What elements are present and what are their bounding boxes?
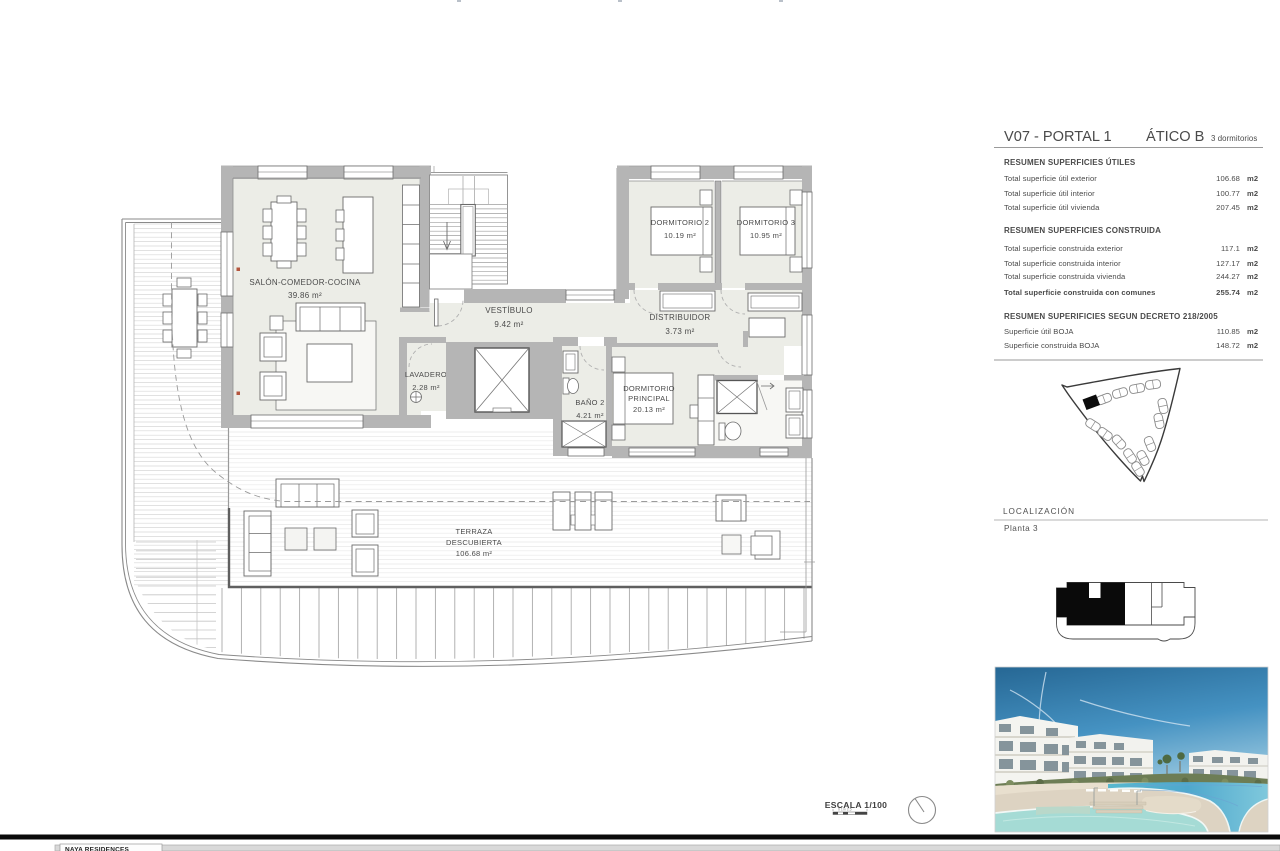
svg-text:m2: m2 <box>1247 327 1258 336</box>
svg-text:Total superficie construida in: Total superficie construida interior <box>1004 259 1121 268</box>
svg-text:m2: m2 <box>1247 244 1258 253</box>
svg-text:106.68 m²: 106.68 m² <box>456 549 493 558</box>
svg-text:m2: m2 <box>1247 341 1258 350</box>
svg-text:DORMITORIO: DORMITORIO <box>623 384 675 393</box>
svg-text:0 1m 2.5: 0 1m 2.5 <box>838 808 852 812</box>
svg-text:ESCALA 1/100: ESCALA 1/100 <box>825 800 888 810</box>
svg-text:Total superficie útil vivienda: Total superficie útil vivienda <box>1004 203 1100 212</box>
svg-text:148.72: 148.72 <box>1216 341 1240 350</box>
svg-text:NAYA RESIDENCES: NAYA RESIDENCES <box>65 847 130 851</box>
svg-text:ÁTICO B: ÁTICO B <box>1146 128 1204 145</box>
svg-text:Total superficie construida vi: Total superficie construida vivienda <box>1004 272 1126 281</box>
svg-text:m2: m2 <box>1247 272 1258 281</box>
svg-text:m2: m2 <box>1247 174 1258 183</box>
svg-text:DORMITORIO 3: DORMITORIO 3 <box>737 218 795 227</box>
svg-text:10.95 m²: 10.95 m² <box>750 231 782 240</box>
svg-text:TERRAZA: TERRAZA <box>455 527 492 536</box>
svg-text:DESCUBIERTA: DESCUBIERTA <box>446 538 502 547</box>
svg-text:SALÓN-COMEDOR-COCINA: SALÓN-COMEDOR-COCINA <box>249 278 361 287</box>
svg-text:RESUMEN SUPERIFICIES SEGUN DEC: RESUMEN SUPERIFICIES SEGUN DECRETO 218/2… <box>1004 312 1218 321</box>
svg-text:Total superficie útil exterior: Total superficie útil exterior <box>1004 174 1097 183</box>
svg-text:244.27: 244.27 <box>1216 272 1240 281</box>
svg-text:DORMITORIO 2: DORMITORIO 2 <box>651 218 709 227</box>
svg-text:Superficie construida BOJA: Superficie construida BOJA <box>1004 341 1100 350</box>
svg-text:m2: m2 <box>1247 288 1258 297</box>
svg-text:3.73 m²: 3.73 m² <box>665 327 694 336</box>
svg-text:106.68: 106.68 <box>1216 174 1240 183</box>
svg-text:39.86 m²: 39.86 m² <box>288 291 322 300</box>
svg-text:BAÑO 2: BAÑO 2 <box>575 398 604 407</box>
svg-text:DISTRIBUIDOR: DISTRIBUIDOR <box>650 313 711 322</box>
svg-text:LOCALIZACIÓN: LOCALIZACIÓN <box>1003 506 1075 516</box>
svg-text:LAVADERO: LAVADERO <box>405 370 447 379</box>
svg-text:3 dormitorios: 3 dormitorios <box>1211 134 1257 143</box>
svg-text:9.42 m²: 9.42 m² <box>494 320 523 329</box>
svg-text:10.19 m²: 10.19 m² <box>664 231 696 240</box>
svg-text:100.77: 100.77 <box>1216 189 1240 198</box>
svg-text:117.1: 117.1 <box>1221 244 1240 253</box>
svg-text:Superficie útil BOJA: Superficie útil BOJA <box>1004 327 1074 336</box>
svg-text:PRINCIPAL: PRINCIPAL <box>628 394 670 403</box>
svg-text:20.13 m²: 20.13 m² <box>633 405 665 414</box>
svg-text:Total superficie construida co: Total superficie construida con comunes <box>1004 288 1155 297</box>
svg-text:127.17: 127.17 <box>1216 259 1240 268</box>
svg-text:V07 - PORTAL 1: V07 - PORTAL 1 <box>1004 129 1112 145</box>
svg-text:RESUMEN SUPERFICIES CONSTRUIDA: RESUMEN SUPERFICIES CONSTRUIDA <box>1004 226 1161 235</box>
svg-text:Total superficie útil interior: Total superficie útil interior <box>1004 189 1095 198</box>
svg-text:110.85: 110.85 <box>1217 327 1240 336</box>
svg-text:4.21 m²: 4.21 m² <box>576 411 604 420</box>
svg-text:207.45: 207.45 <box>1216 203 1240 212</box>
svg-text:RESUMEN SUPERFICIES ÚTILES: RESUMEN SUPERFICIES ÚTILES <box>1004 158 1136 167</box>
svg-text:Planta 3: Planta 3 <box>1004 524 1038 533</box>
svg-text:m2: m2 <box>1247 203 1258 212</box>
svg-text:m2: m2 <box>1247 259 1258 268</box>
svg-text:VESTÍBULO: VESTÍBULO <box>485 306 533 315</box>
svg-text:m2: m2 <box>1247 189 1258 198</box>
svg-text:255.74: 255.74 <box>1216 288 1241 297</box>
svg-text:Total superficie construida ex: Total superficie construida exterior <box>1004 244 1123 253</box>
svg-text:2.28 m²: 2.28 m² <box>412 383 440 392</box>
